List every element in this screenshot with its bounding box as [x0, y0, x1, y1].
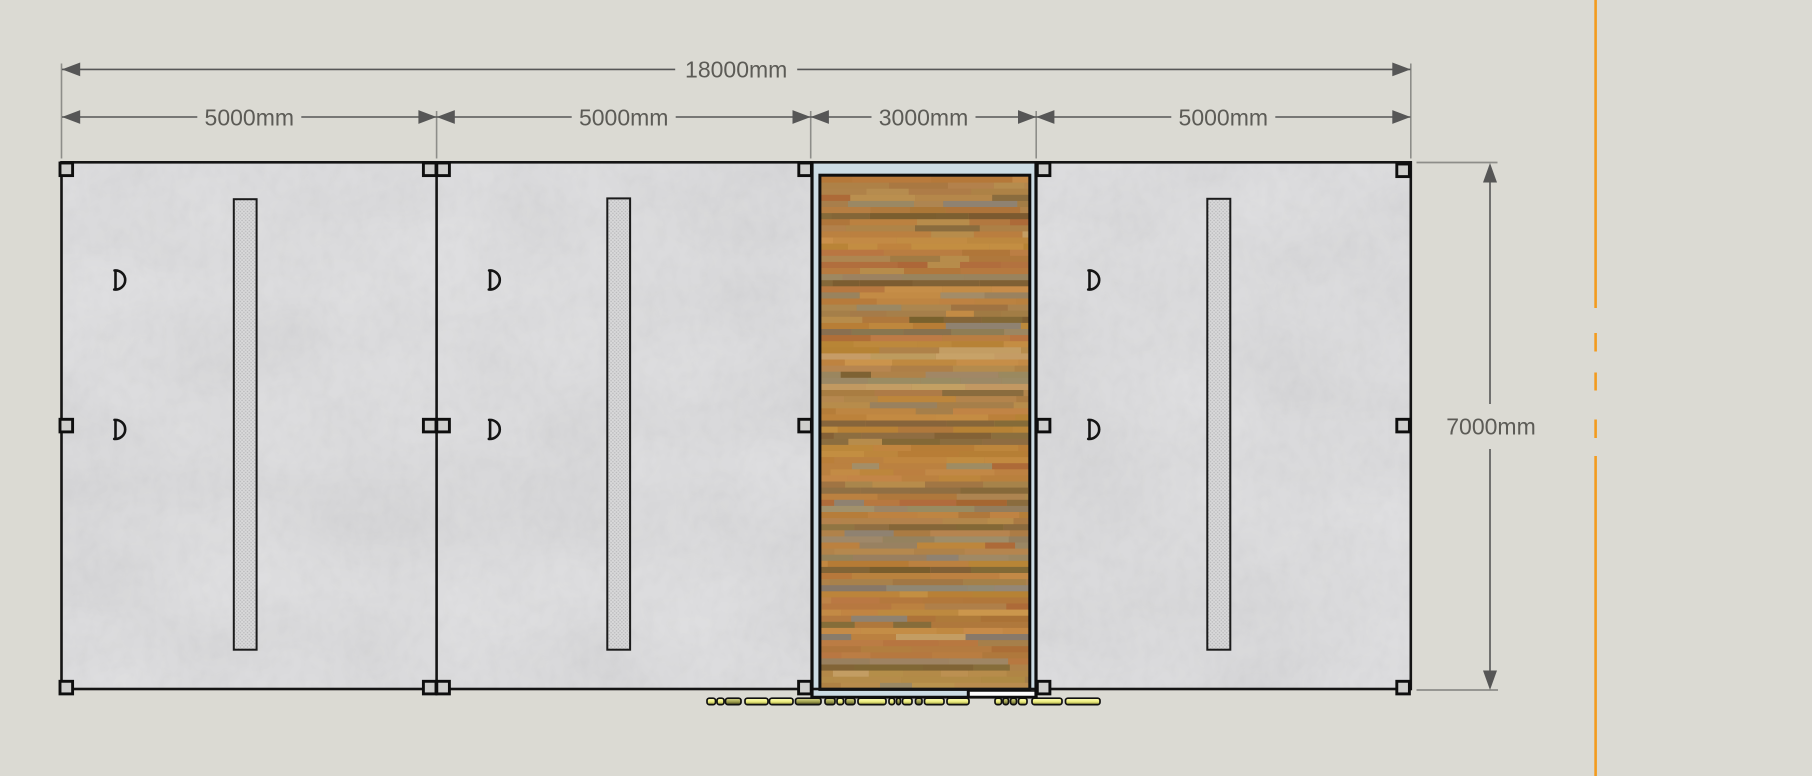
svg-text:7000mm: 7000mm [1446, 414, 1535, 440]
svg-text:5000mm: 5000mm [205, 104, 294, 130]
svg-text:5000mm: 5000mm [579, 104, 668, 130]
svg-text:3000mm: 3000mm [879, 104, 968, 130]
svg-text:18000mm: 18000mm [685, 57, 787, 83]
svg-text:5000mm: 5000mm [1179, 104, 1268, 130]
